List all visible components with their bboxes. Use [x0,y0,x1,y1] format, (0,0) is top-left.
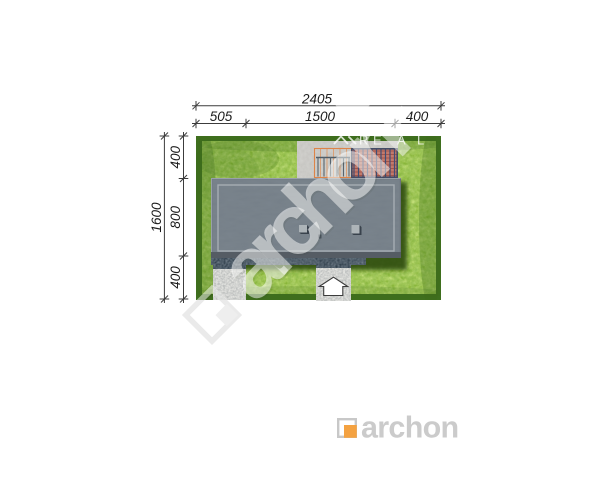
svg-text:archon: archon [361,411,459,445]
svg-text:A: A [397,133,406,148]
svg-text:R: R [359,133,368,148]
svg-text:800: 800 [168,206,183,229]
svg-text:505: 505 [210,109,233,124]
svg-text:L: L [417,133,424,148]
svg-text:1600: 1600 [149,202,164,233]
svg-text:400: 400 [406,109,429,124]
svg-text:400: 400 [168,266,183,289]
svg-text:E: E [373,133,382,148]
svg-text:1500: 1500 [305,109,336,124]
svg-text:400: 400 [168,146,183,169]
svg-text:2405: 2405 [301,92,333,107]
